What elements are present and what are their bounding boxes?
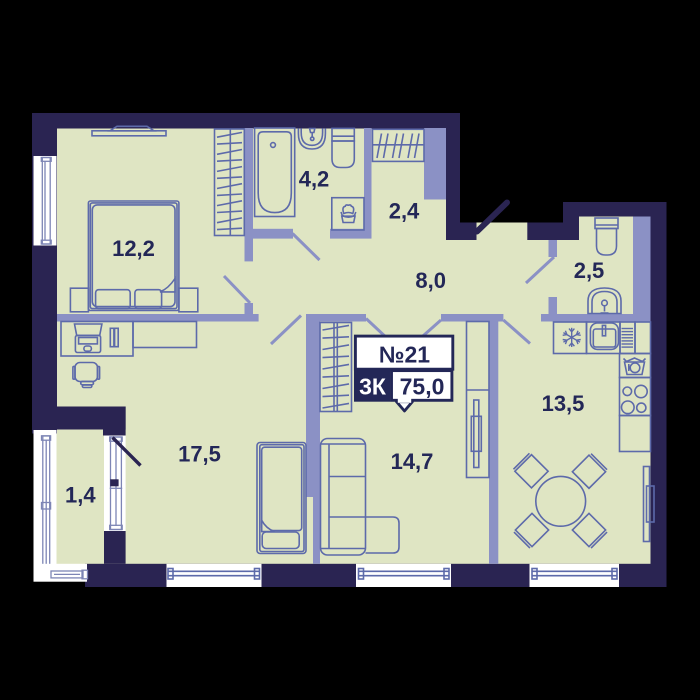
svg-text:17,5: 17,5 bbox=[178, 442, 221, 467]
svg-text:№21: №21 bbox=[379, 342, 430, 368]
svg-text:14,7: 14,7 bbox=[391, 449, 434, 474]
svg-text:2,4: 2,4 bbox=[389, 199, 420, 224]
svg-text:75,0: 75,0 bbox=[400, 373, 445, 399]
svg-text:8,0: 8,0 bbox=[415, 268, 446, 293]
svg-text:12,2: 12,2 bbox=[112, 236, 155, 261]
svg-text:3К: 3К bbox=[359, 373, 387, 399]
svg-text:2,5: 2,5 bbox=[574, 258, 605, 283]
svg-text:4,2: 4,2 bbox=[299, 167, 330, 192]
svg-text:1,4: 1,4 bbox=[65, 483, 96, 508]
svg-text:13,5: 13,5 bbox=[542, 391, 585, 416]
